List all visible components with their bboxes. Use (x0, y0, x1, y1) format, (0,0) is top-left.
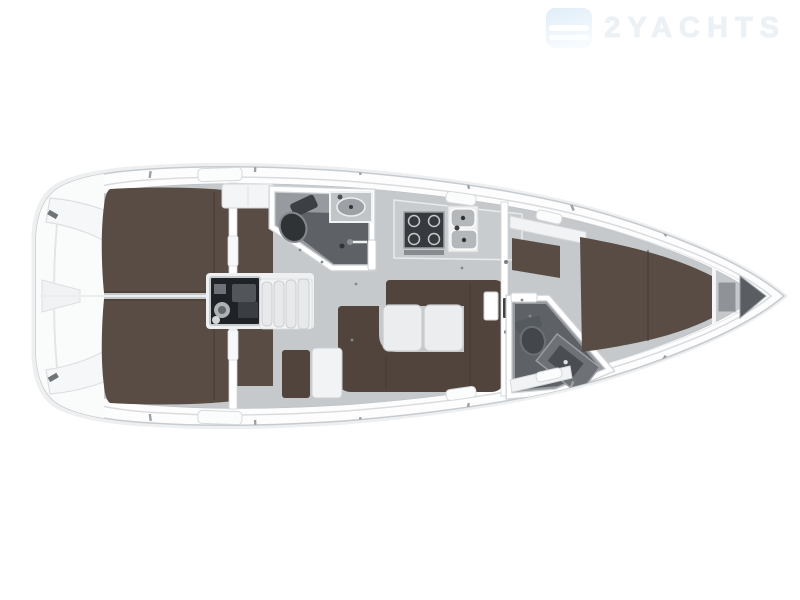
chart-table (282, 348, 342, 398)
stove-icon (404, 212, 444, 255)
watermark: 2YACHTS (546, 8, 786, 48)
companionway-steps (260, 279, 312, 329)
aft-cabin-door (228, 236, 238, 266)
yacht-floorplan (0, 0, 800, 600)
head-door (368, 240, 376, 270)
waves-logo-icon (546, 8, 592, 48)
head-door (511, 293, 537, 302)
chart-seat (282, 350, 310, 398)
salon-table (383, 305, 422, 351)
faucet-icon (455, 226, 460, 231)
canvas: 2YACHTS (0, 0, 800, 600)
faucet-icon (338, 195, 343, 200)
hinge-icon (504, 260, 508, 264)
shower-drain-icon (340, 244, 345, 249)
galley-sinks (448, 206, 478, 252)
head-sink (330, 192, 372, 222)
salon-table (424, 305, 463, 351)
bow-locker (718, 282, 736, 312)
cabin-door (484, 292, 498, 320)
aft-cabin-door (228, 330, 238, 360)
watermark-text: 2YACHTS (604, 12, 786, 45)
